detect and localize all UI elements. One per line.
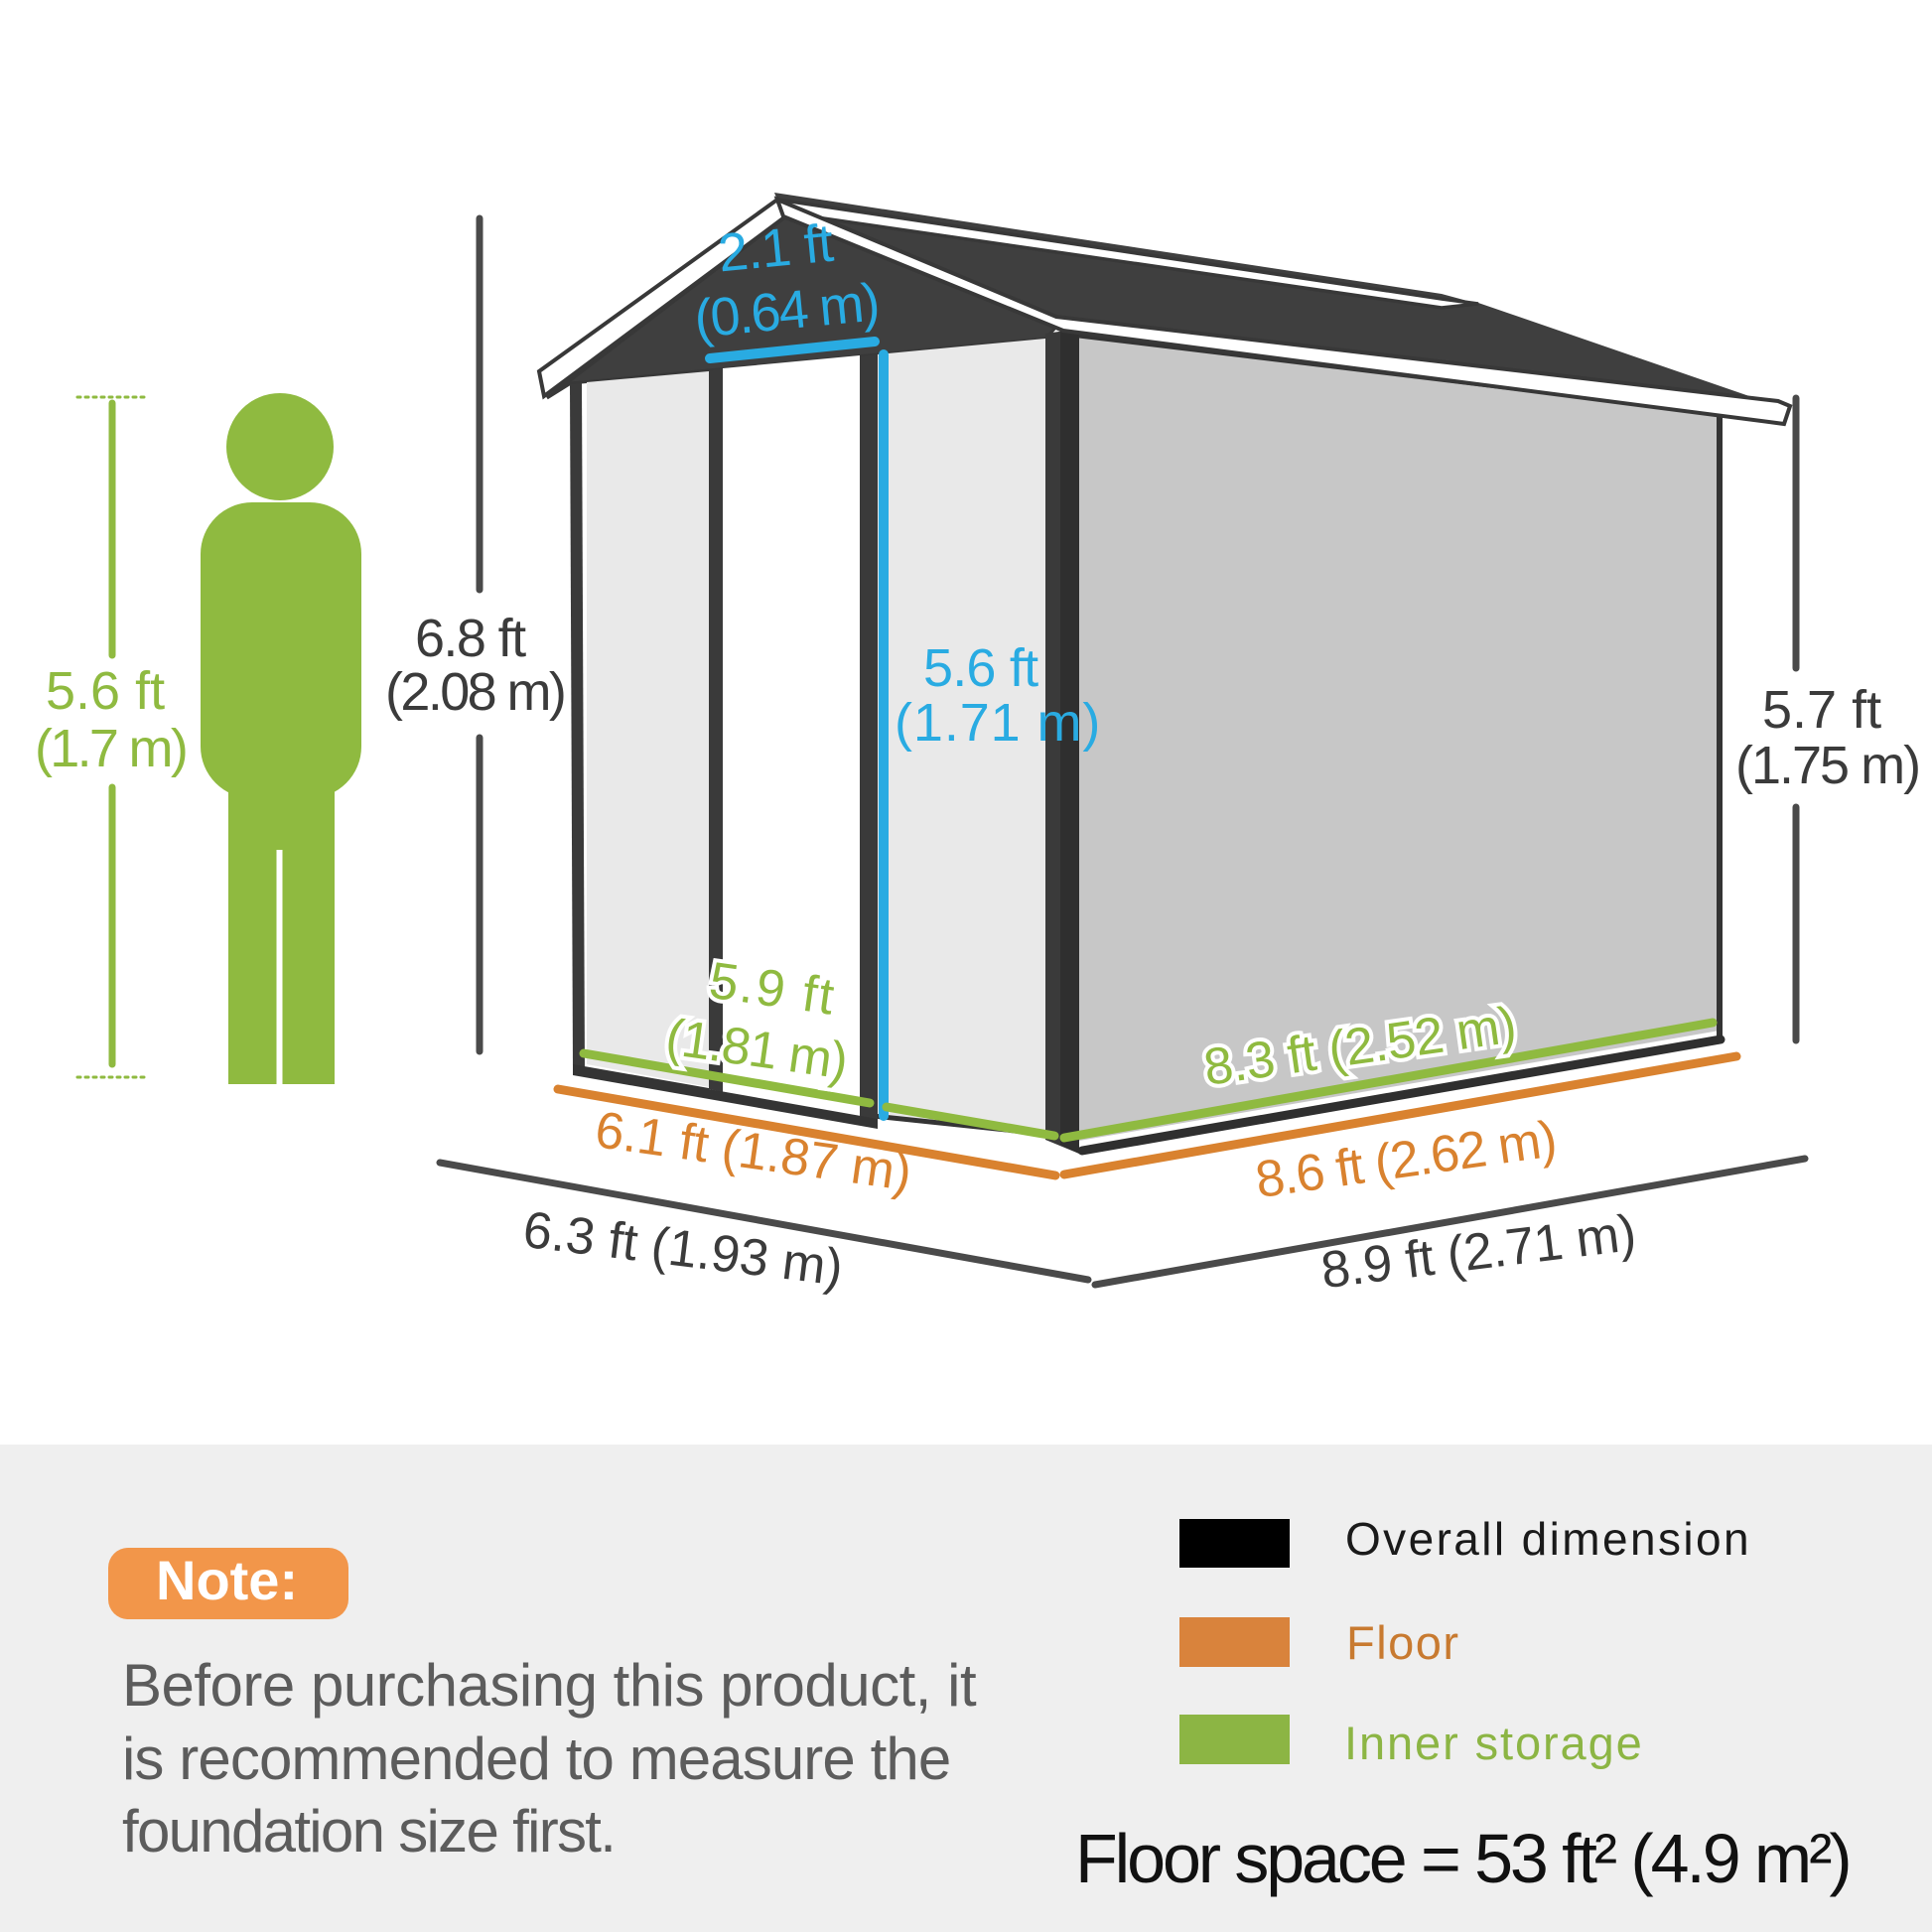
svg-text:2.1 ft: 2.1 ft [716, 213, 836, 284]
svg-text:Overall dimension: Overall dimension [1345, 1513, 1751, 1565]
svg-text:Floor: Floor [1346, 1616, 1460, 1669]
svg-text:foundation size first.: foundation size first. [122, 1798, 615, 1864]
svg-text:(1.7 m): (1.7 m) [35, 719, 186, 778]
svg-text:6.8 ft: 6.8 ft [415, 609, 526, 668]
svg-text:(1.75 m): (1.75 m) [1735, 736, 1919, 795]
svg-text:is recommended to measure the: is recommended to measure the [122, 1725, 950, 1792]
svg-text:Floor space = 53 ft² (4.9 m²): Floor space = 53 ft² (4.9 m²) [1075, 1820, 1850, 1897]
svg-text:(1.71 m): (1.71 m) [895, 693, 1101, 753]
svg-text:Before purchasing this product: Before purchasing this product, it [122, 1652, 977, 1719]
svg-text:Inner storage: Inner storage [1344, 1717, 1644, 1769]
svg-text:Note:: Note: [156, 1549, 298, 1611]
svg-text:5.7 ft: 5.7 ft [1762, 680, 1881, 740]
svg-text:(2.08 m): (2.08 m) [385, 662, 564, 722]
svg-text:5.6 ft: 5.6 ft [923, 638, 1038, 698]
svg-text:5.6 ft: 5.6 ft [46, 661, 165, 721]
